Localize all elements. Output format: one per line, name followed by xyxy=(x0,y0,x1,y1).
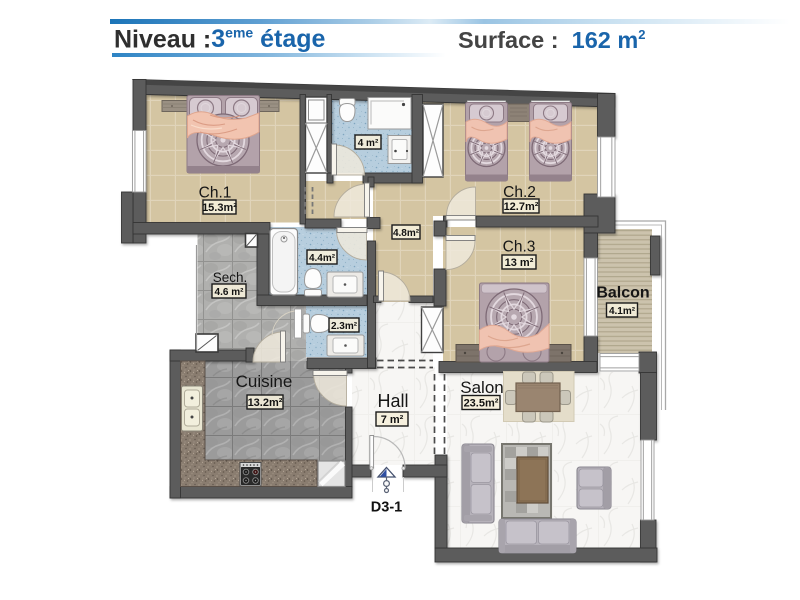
svg-text:2.3m²: 2.3m² xyxy=(331,321,358,332)
svg-text:Hall: Hall xyxy=(377,391,408,411)
svg-text:Salon: Salon xyxy=(460,378,503,397)
svg-text:4 m²: 4 m² xyxy=(358,138,379,149)
svg-text:Ch.1: Ch.1 xyxy=(199,185,232,202)
svg-text:Balcon: Balcon xyxy=(596,285,649,302)
svg-text:4.1m²: 4.1m² xyxy=(609,306,636,317)
svg-text:15.3m²: 15.3m² xyxy=(202,202,237,214)
svg-text:7 m²: 7 m² xyxy=(381,414,404,426)
svg-text:Sech.: Sech. xyxy=(213,270,248,285)
svg-text:12.7m²: 12.7m² xyxy=(504,201,539,213)
svg-text:13 m²: 13 m² xyxy=(505,257,534,269)
svg-text:Cuisine: Cuisine xyxy=(236,372,293,391)
svg-text:4.6 m²: 4.6 m² xyxy=(215,287,245,298)
svg-text:4.4m²: 4.4m² xyxy=(309,253,336,264)
svg-text:Ch.3: Ch.3 xyxy=(503,239,536,256)
svg-text:23.5m²: 23.5m² xyxy=(464,398,499,410)
svg-text:4.8m²: 4.8m² xyxy=(393,228,420,239)
svg-text:D3-1: D3-1 xyxy=(371,500,402,516)
svg-text:13.2m²: 13.2m² xyxy=(248,397,283,409)
